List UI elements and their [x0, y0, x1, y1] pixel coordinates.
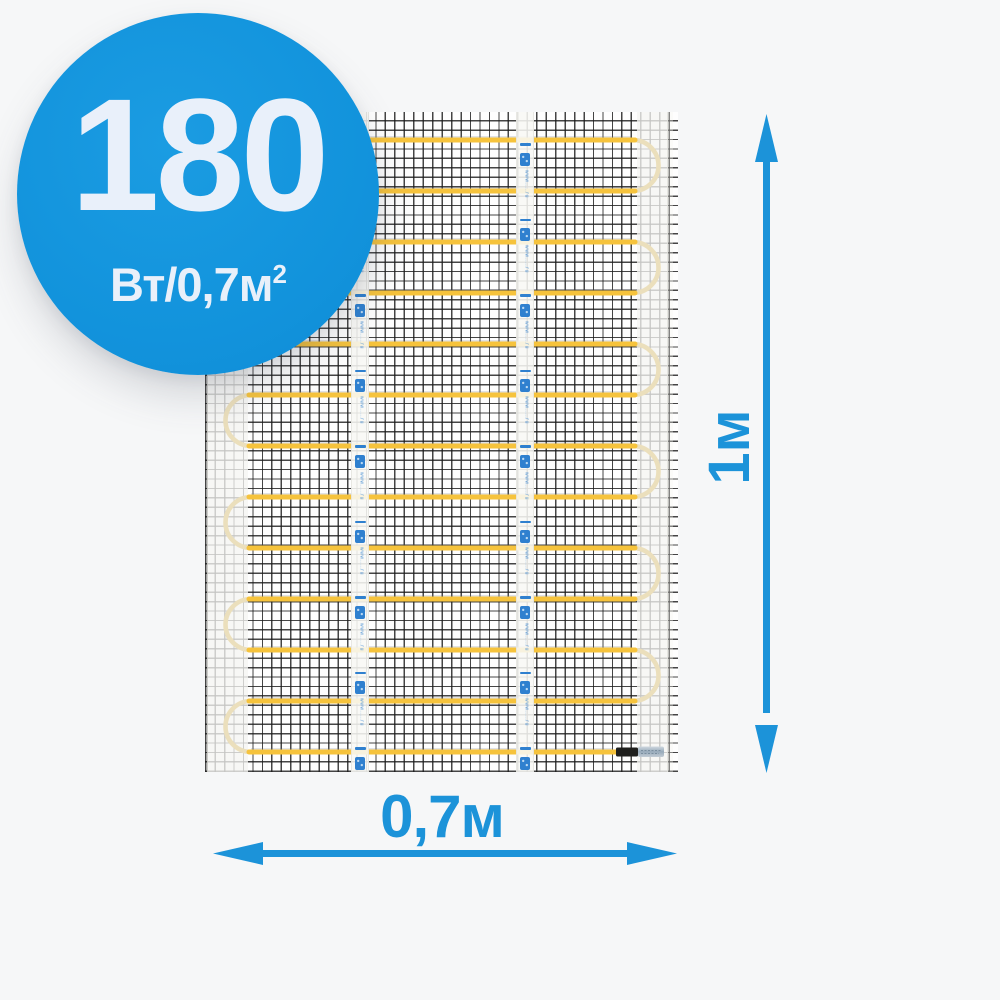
tape-dash	[355, 596, 366, 599]
tape-logo-icon	[355, 379, 365, 392]
tape-mark-group: www.....ru	[352, 294, 368, 348]
tape-dash	[355, 294, 366, 297]
tape-dash	[520, 596, 531, 599]
tape-mark-group: www.....ru	[352, 747, 368, 772]
tape-mark-group: www.....ru	[517, 143, 533, 197]
tape-url-text: www.....ru	[522, 396, 529, 424]
tape-dash	[520, 143, 531, 146]
arrow-up-icon	[755, 114, 778, 162]
tape-logo-icon	[520, 455, 530, 468]
tape-mark-group: www.....ru	[517, 445, 533, 499]
arrow-right-icon	[627, 842, 677, 865]
power-badge: 180 Вт/0,7м2	[17, 13, 379, 375]
tape-logo-icon	[355, 606, 365, 619]
tape-logo-icon	[355, 304, 365, 317]
tape-url-text: www.....ru	[522, 321, 529, 349]
tape-mark-group: www.....ru	[517, 596, 533, 650]
tape-dash	[520, 219, 531, 222]
tape-logo-icon	[355, 681, 365, 694]
tape-logo-icon	[355, 455, 365, 468]
tape-logo-icon	[520, 228, 530, 241]
tape-dash	[520, 294, 531, 297]
width-arrow-shaft	[260, 850, 630, 857]
tape-logo-icon	[520, 153, 530, 166]
tape-dash	[355, 370, 366, 373]
power-value-text: 180	[71, 75, 326, 235]
tape-mark-group: www.....ru	[352, 672, 368, 726]
tape-dash	[520, 672, 531, 675]
tape-logo-icon	[520, 757, 530, 770]
tape-dash	[520, 370, 531, 373]
power-unit-text: Вт/0,7м2	[110, 261, 286, 308]
tape-logo-icon	[355, 757, 365, 770]
tape-mark-group: www.....ru	[517, 672, 533, 726]
mat-brand-tape: www.....ruwww.....ruwww.....ruwww.....ru…	[516, 112, 534, 772]
tape-mark-group: www.....ru	[352, 370, 368, 424]
tape-url-text: www.....ru	[357, 547, 364, 575]
tape-url-text: www.....ru	[357, 623, 364, 651]
tape-logo-icon	[355, 530, 365, 543]
tape-dash	[520, 521, 531, 524]
arrow-down-icon	[755, 725, 778, 773]
cable-end-crimp	[638, 747, 664, 758]
tape-mark-group: www.....ru	[517, 294, 533, 348]
width-dimension-label: 0,7м	[342, 786, 542, 846]
tape-mark-group: www.....ru	[517, 219, 533, 273]
product-image-background: www.....ruwww.....ruwww.....ruwww.....ru…	[0, 0, 1000, 1000]
tape-dash	[520, 445, 531, 448]
tape-mark-group: www.....ru	[352, 445, 368, 499]
tape-logo-icon	[520, 304, 530, 317]
tape-mark-group: www.....ru	[517, 370, 533, 424]
tape-dash	[520, 747, 531, 750]
tape-dash	[355, 521, 366, 524]
tape-mark-group: www.....ru	[517, 521, 533, 575]
tape-logo-icon	[520, 530, 530, 543]
tape-url-text: www.....ru	[522, 547, 529, 575]
tape-url-text: www.....ru	[522, 472, 529, 500]
tape-url-text: www.....ru	[522, 698, 529, 726]
tape-logo-icon	[520, 379, 530, 392]
tape-dash	[355, 747, 366, 750]
tape-url-text: www.....ru	[522, 170, 529, 198]
tape-logo-icon	[520, 681, 530, 694]
tape-url-text: www.....ru	[357, 698, 364, 726]
arrow-left-icon	[213, 842, 263, 865]
tape-logo-icon	[520, 606, 530, 619]
tape-dash	[355, 445, 366, 448]
tape-url-text: www.....ru	[357, 472, 364, 500]
tape-url-text: www.....ru	[357, 396, 364, 424]
tape-url-text: www.....ru	[522, 245, 529, 273]
tape-dash	[355, 672, 366, 675]
power-unit-prefix: Вт/0,7м	[110, 258, 273, 311]
cable-end-sleeve	[616, 748, 638, 757]
tape-mark-group: www.....ru	[517, 747, 533, 772]
power-unit-superscript: 2	[273, 259, 286, 289]
height-dimension-label: 1м	[684, 417, 774, 477]
tape-url-text: www.....ru	[357, 321, 364, 349]
tape-url-text: www.....ru	[522, 623, 529, 651]
tape-mark-group: www.....ru	[352, 596, 368, 650]
tape-mark-group: www.....ru	[352, 521, 368, 575]
